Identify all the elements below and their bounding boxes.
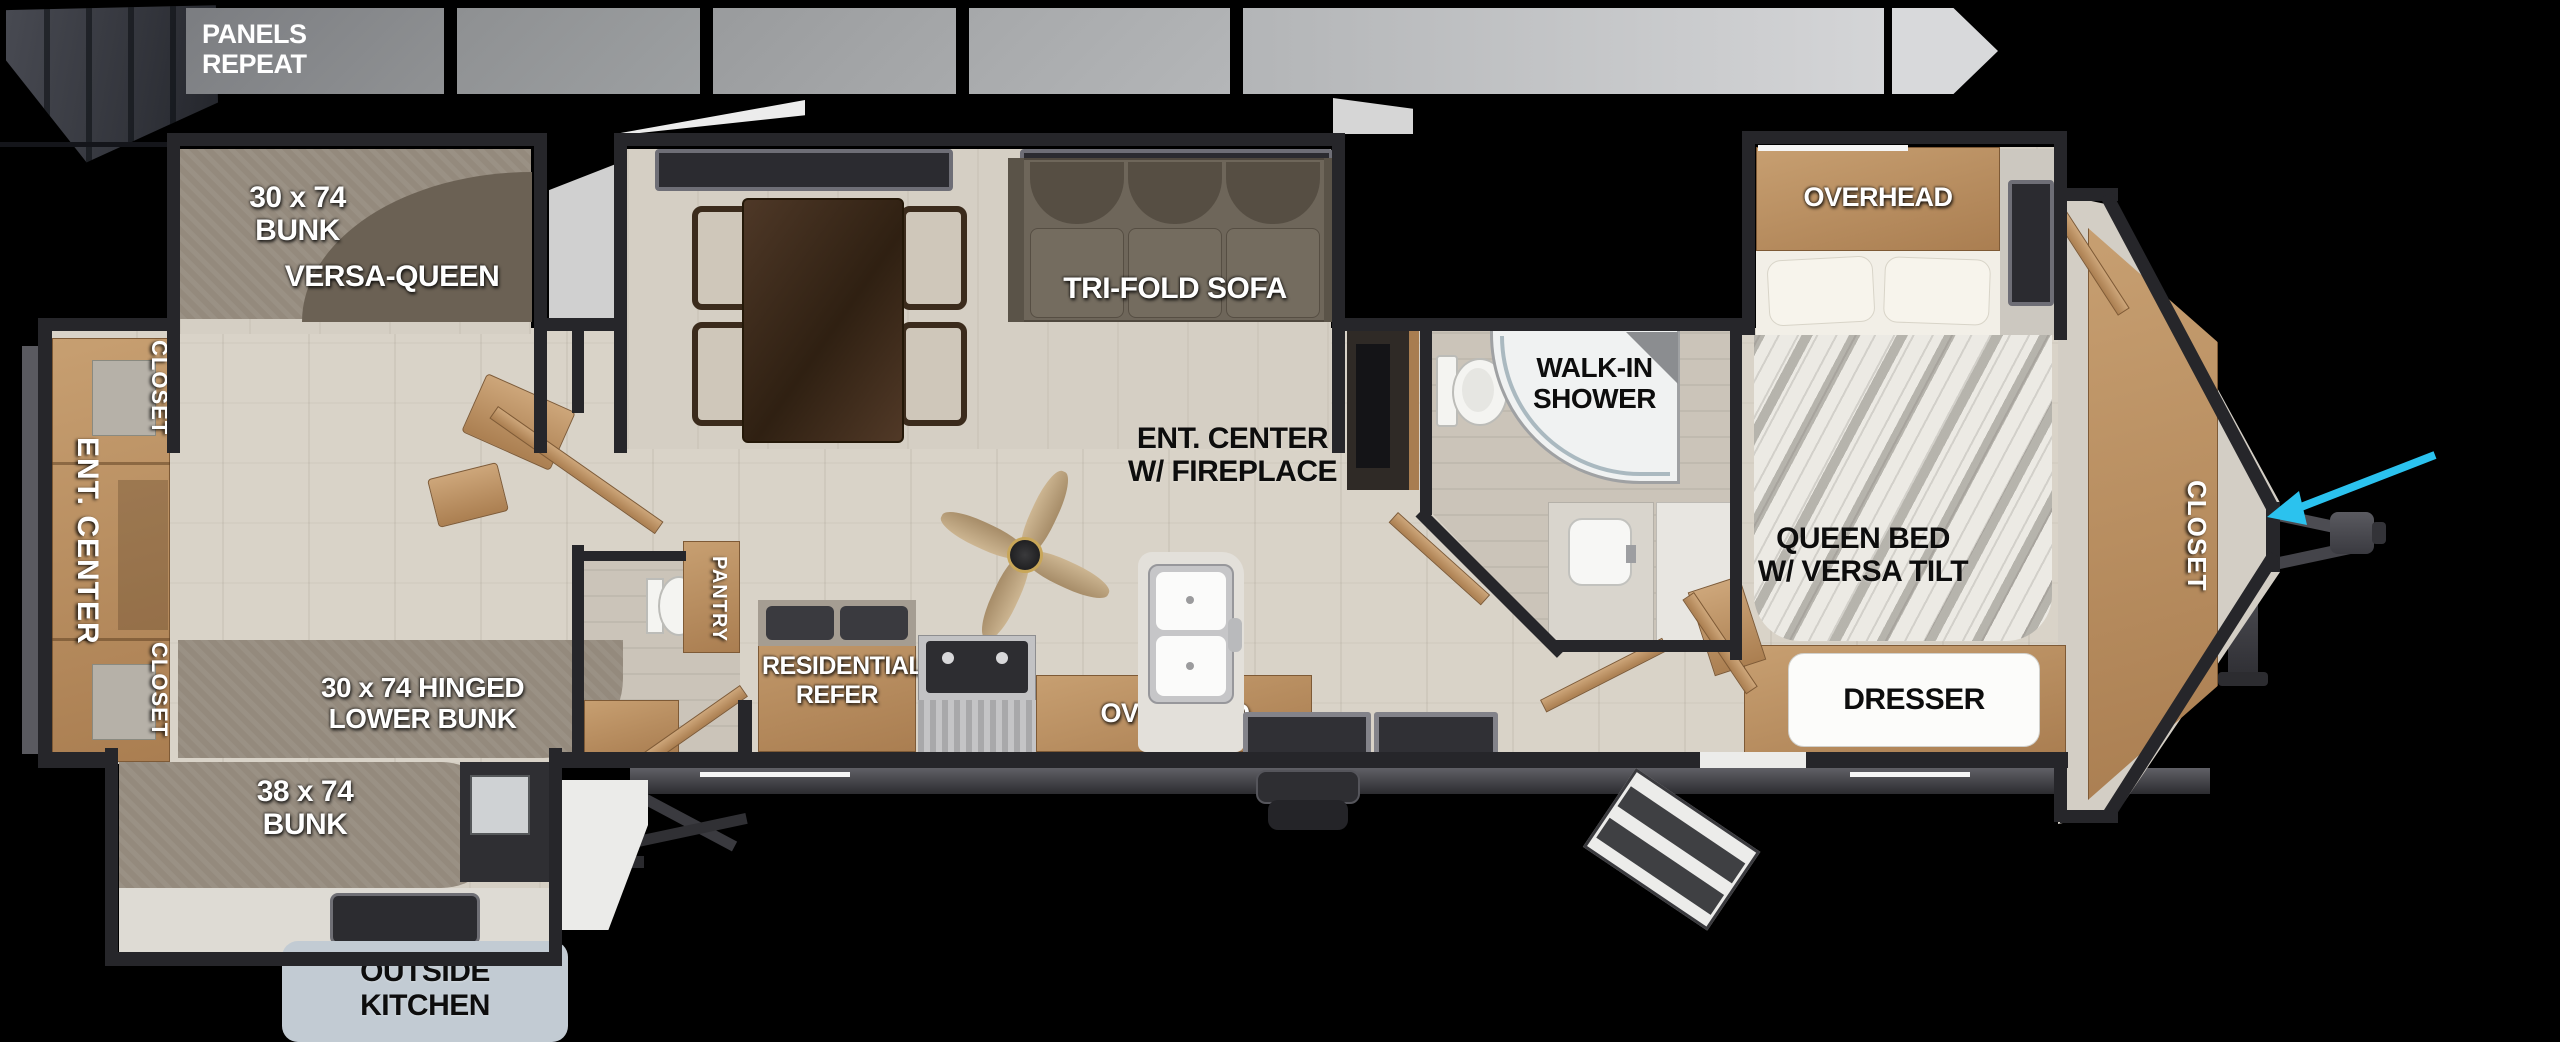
wall-lower-slide-left [105, 748, 118, 966]
walk-in-shower-label: WALK-IN SHOWER [1502, 352, 1687, 414]
refer-door-top [766, 606, 834, 640]
bunk-size-label: 30 x 74 BUNK [205, 181, 390, 247]
entry-steps-fold [1256, 770, 1360, 804]
queen-bed-quilt [1754, 335, 2052, 641]
rail-accent [700, 772, 850, 777]
dinette-chair [900, 206, 967, 310]
tri-fold-sofa-label: TRI-FOLD SOFA [1035, 272, 1315, 305]
panel-5 [1243, 8, 1884, 94]
panel-2 [457, 8, 700, 94]
wall-bath-top [1345, 318, 1742, 331]
wall-dinette-slide-right [1332, 133, 1345, 453]
wall-bottom-main [562, 752, 1702, 768]
sink-faucet [1228, 618, 1242, 652]
wall-lower-slide-bottom [105, 952, 562, 966]
bed-pillow [1883, 256, 1991, 326]
stove-cooktop [926, 641, 1028, 693]
panel-rib [86, 2, 92, 164]
bunk-38-label: 38 x 74 BUNK [225, 775, 385, 841]
ceiling-fan-hub [1007, 537, 1043, 573]
panel-edge-line [0, 142, 170, 147]
dresser-label: DRESSER [1788, 683, 2040, 716]
wall-bedroom-left [1730, 330, 1742, 660]
wall-rear [38, 328, 52, 768]
dinette-chair [900, 322, 967, 426]
wall-dinette-slide-left [614, 133, 627, 453]
rail-accent [1850, 772, 1970, 777]
fireplace-screen [1356, 344, 1390, 468]
wall-bed-slide-left [1742, 131, 1755, 335]
vanity-basin [1568, 518, 1632, 586]
wall-dinette-slide-top [614, 133, 1345, 146]
rear-closet-bottom-label: CLOSET [138, 642, 172, 738]
refer-door-top [840, 606, 908, 640]
fireplace-label: ENT. CENTER W/ FIREPLACE [1120, 422, 1345, 488]
sink-drain [1186, 596, 1194, 604]
hinged-bunk-label: 30 x 74 HINGED LOWER BUNK [290, 672, 555, 734]
dinette-window [655, 149, 953, 191]
panel-rib [44, 2, 50, 164]
wall-bottom-bedroom [1806, 752, 2068, 768]
toilet-seat [1462, 368, 1494, 412]
wall-bunk-slide-left [167, 133, 180, 453]
pantry-label: PANTRY [694, 551, 730, 647]
ent-center-doors [118, 480, 168, 630]
wall-bunk-slide-right [534, 133, 547, 453]
wall-bath-bottom [1556, 640, 1742, 652]
wall-bunk-slide-top [167, 133, 547, 146]
bed-pillow [1766, 255, 1875, 326]
wall-bunk-bath-right [738, 700, 752, 755]
frame-rail [630, 768, 2210, 794]
outside-kitchen-griddle [470, 775, 530, 835]
entry-step-platform [1569, 768, 1760, 951]
front-closet-label: CLOSET [2170, 458, 2212, 614]
slide-accent-strip [1758, 145, 1908, 151]
outside-kitchen-sink [330, 893, 480, 945]
sofa-arm [1008, 158, 1024, 322]
queen-bed-label: QUEEN BED W/ VERSA TILT [1718, 522, 2008, 588]
slide-gap-exterior [549, 162, 621, 318]
rv-floorplan: PANELS REPEAT ENT. CENTER [0, 0, 2560, 1042]
entry-door-threshold [1700, 752, 1808, 768]
entry-steps-fold [1268, 800, 1348, 830]
panel-arrow [1892, 8, 1998, 94]
wall-bunk-bath-top [584, 551, 686, 561]
wall-lower-slide-right [549, 748, 562, 966]
sink-drain [1186, 662, 1194, 670]
bedroom-slide-window [2008, 180, 2054, 306]
versa-queen-label: VERSA-QUEEN [272, 260, 512, 293]
slide-top-sliver [615, 100, 805, 134]
stove-grill [918, 700, 1036, 752]
slide-top-sliver [1333, 98, 1413, 134]
wall-interior-bunk-top [572, 328, 584, 413]
dinette-table [742, 198, 904, 443]
bedroom-overhead-label: OVERHEAD [1778, 182, 1978, 212]
wall-top-rear [38, 318, 178, 331]
panel-rib [128, 2, 134, 164]
rear-ent-center-label: ENT. CENTER [64, 436, 104, 646]
landing-gear-foot [2218, 672, 2268, 686]
entry-arrow [2255, 445, 2440, 545]
vanity-faucet [1626, 545, 1636, 563]
wall-cap-bottom [2060, 810, 2118, 823]
wall-bed-slide-top [1742, 131, 2067, 144]
panel-1: PANELS REPEAT [186, 8, 444, 94]
wall-bath-left [1420, 330, 1432, 515]
panel-4 [969, 8, 1230, 94]
outside-kitchen-door-panel [560, 780, 648, 930]
refer-label: RESIDENTIAL REFER [762, 652, 912, 710]
stove-burner [996, 652, 1008, 664]
wall-interior-bunk-bottom [572, 545, 584, 755]
wall-cap-left-top [2054, 188, 2067, 340]
panels-repeat-label: PANELS REPEAT [202, 19, 307, 79]
stove-burner [942, 652, 954, 664]
panel-3 [713, 8, 956, 94]
